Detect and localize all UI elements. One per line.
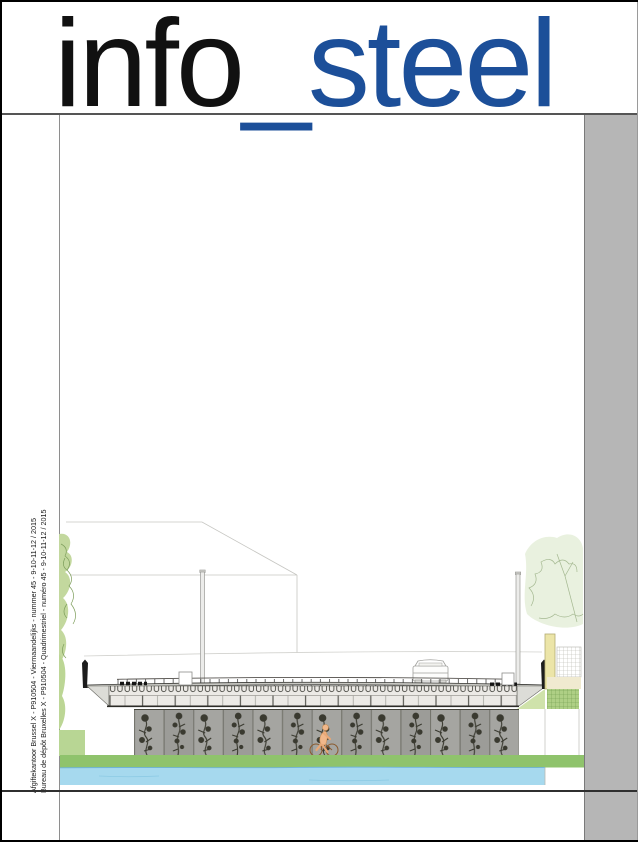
magazine-title: info_steel <box>54 2 555 126</box>
deck-cabinet-right <box>502 673 514 685</box>
footer-rule <box>2 790 638 792</box>
magazine-cover: info_steel 45 Afgiftekantoor Brussel X -… <box>0 0 638 842</box>
bridge-elevation-drawing <box>59 514 584 792</box>
lamp-mast-right <box>515 572 520 684</box>
left-grass-block <box>59 730 85 756</box>
issue-band: 45 <box>584 115 638 840</box>
deck-cabinet-left <box>179 672 192 685</box>
end-post-left <box>82 660 88 689</box>
spine-postal-info: Afgiftekantoor Brussel X - P910504 - Vie… <box>29 501 48 793</box>
left-tree <box>59 534 76 730</box>
right-tree <box>525 534 583 627</box>
background-house-outline <box>66 522 542 656</box>
spine-line-dutch: Afgiftekantoor Brussel X - P910504 - Vie… <box>29 501 39 793</box>
lamp-mast-left <box>200 570 205 685</box>
spine-line-french: Bureau de dépôt Bruxelles X - P910504 - … <box>39 501 49 793</box>
canal-water <box>60 767 545 785</box>
grass-strip <box>60 755 584 768</box>
header-rule <box>2 113 638 115</box>
